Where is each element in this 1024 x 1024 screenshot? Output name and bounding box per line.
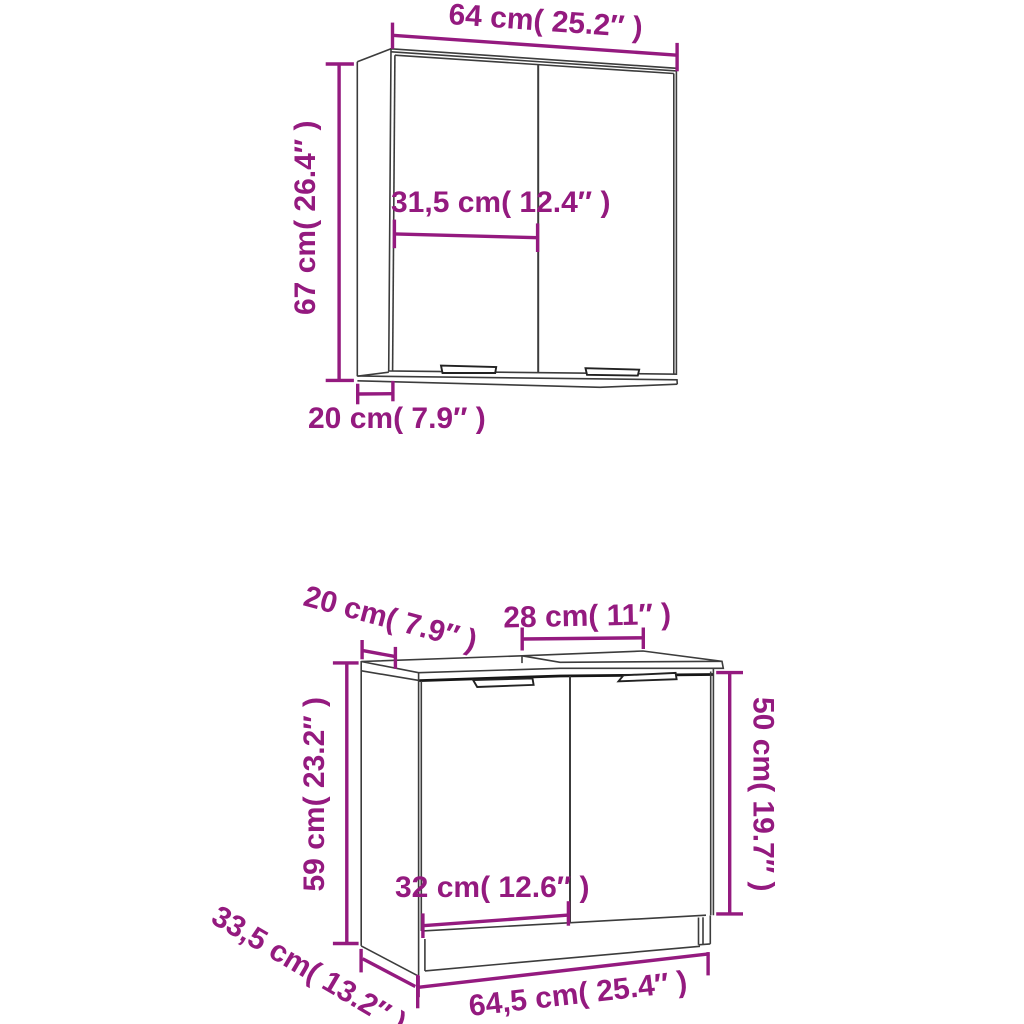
svg-text:20 cm( 7.9″ ): 20 cm( 7.9″ )	[308, 402, 486, 435]
svg-text:31,5 cm( 12.4″ ): 31,5 cm( 12.4″ )	[391, 186, 611, 219]
svg-text:28 cm( 11″ ): 28 cm( 11″ )	[503, 598, 671, 635]
svg-text:50 cm( 19.7″ ): 50 cm( 19.7″ )	[747, 697, 780, 891]
svg-text:32 cm( 12.6″ ): 32 cm( 12.6″ )	[395, 871, 589, 904]
svg-text:59 cm( 23.2″ ): 59 cm( 23.2″ )	[298, 697, 331, 891]
svg-text:67 cm( 26.4″ ): 67 cm( 26.4″ )	[289, 121, 322, 315]
